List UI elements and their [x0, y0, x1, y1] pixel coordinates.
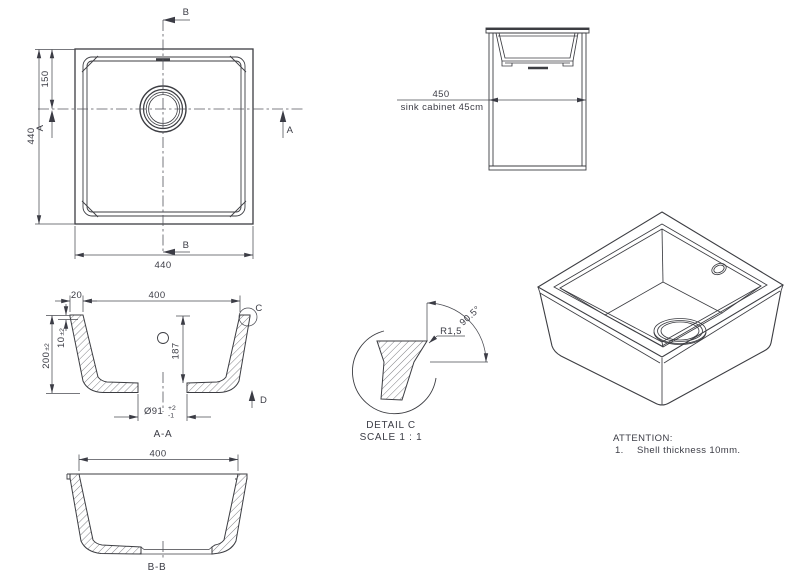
aa-overflow-hole: [158, 333, 169, 344]
bowl-top-edge: [87, 61, 241, 212]
bb-left-wall: [70, 474, 141, 554]
dim-drain: Ø91: [144, 406, 163, 417]
dim-20: 20: [71, 290, 82, 301]
detail-wall-section: [377, 341, 427, 400]
dim-drain-tol-lower: -1: [168, 413, 174, 420]
direction-arrow-d: D: [249, 390, 267, 408]
dim-440-vertical: 440: [26, 127, 37, 144]
sink-technical-drawing: B B A A 150 440: [0, 0, 800, 579]
dim-450: 450: [432, 89, 449, 100]
section-aa: 20 400 10±2 200±2 187 Ø91 +2 -1: [41, 290, 267, 440]
top-view: B B A A 150 440: [26, 7, 305, 271]
sink-outer-edge: [75, 49, 253, 224]
sink-rim-inner-edge: [83, 57, 245, 216]
attention-note: ATTENTION: 1. Shell thickness 10mm.: [613, 433, 740, 456]
section-marker-a-left: A: [35, 110, 55, 138]
dim-10: 10±2: [56, 328, 67, 348]
iso-bowl-corner-edges: [560, 229, 761, 347]
section-marker-a-right: A: [280, 110, 294, 138]
drawing-sheet: B B A A 150 440: [0, 0, 800, 579]
section-bb-title: B-B: [148, 562, 167, 573]
bb-right-wall: [212, 474, 247, 554]
section-aa-title: A-A: [154, 429, 173, 440]
dim-187: 187: [171, 342, 182, 359]
detail-c-letter: C: [255, 303, 262, 314]
countertop-surface: [486, 28, 589, 30]
top-view-dimensions: 150 440 440: [26, 50, 253, 272]
dim-200: 200±2: [41, 343, 52, 369]
attention-item-text: Shell thickness 10mm.: [637, 445, 740, 456]
section-bb: 400 B-B: [67, 449, 247, 574]
dim-drain-tol-upper: +2: [168, 405, 176, 412]
aa-dimensions: 20 400 10±2 200±2 187 Ø91 +2 -1: [41, 290, 240, 421]
iso-rim-outer: [538, 212, 783, 357]
section-label-a-right: A: [287, 125, 294, 136]
section-marker-b-top: B: [163, 7, 190, 23]
iso-bowl-top-edge: [560, 229, 761, 342]
aa-left-wall: [70, 315, 138, 393]
cabinet-label: sink cabinet 45cm: [401, 102, 484, 113]
dim-400-bb: 400: [149, 449, 166, 460]
dim-440-horizontal: 440: [154, 260, 171, 271]
detail-radius-dimension: R1,5: [429, 326, 465, 343]
iso-rim-inner: [554, 224, 767, 346]
aa-right-wall: [187, 315, 250, 393]
direction-label-d: D: [260, 395, 267, 406]
iso-bowl-floor: [605, 282, 722, 347]
radius-r1-5: R1,5: [440, 326, 462, 337]
attention-heading: ATTENTION:: [613, 433, 673, 444]
cabinet-dimension: 450 sink cabinet 45cm: [397, 89, 586, 113]
dim-400-aa: 400: [148, 290, 165, 301]
corner-chamfers: [82, 56, 246, 217]
section-label-b-top: B: [183, 7, 190, 18]
sink-bowl-side: [496, 33, 578, 68]
bb-dimensions: 400: [79, 449, 238, 472]
iso-overflow-hole: [710, 261, 728, 277]
angle-90-5: 90.5°: [458, 304, 483, 328]
isometric-view: [538, 212, 783, 405]
detail-c-title: DETAIL C: [366, 420, 416, 431]
bb-drain-recess: [141, 547, 212, 554]
section-marker-b-bottom: B: [163, 240, 190, 255]
dim-150: 150: [40, 70, 51, 87]
attention-item-number: 1.: [615, 445, 624, 456]
detail-c-scale: SCALE 1 : 1: [360, 432, 423, 443]
section-label-b-bottom: B: [183, 240, 190, 251]
cabinet-view: 450 sink cabinet 45cm: [397, 28, 589, 170]
detail-c-view: 90.5° R1,5 DETAIL C SCALE 1 : 1: [352, 303, 488, 443]
